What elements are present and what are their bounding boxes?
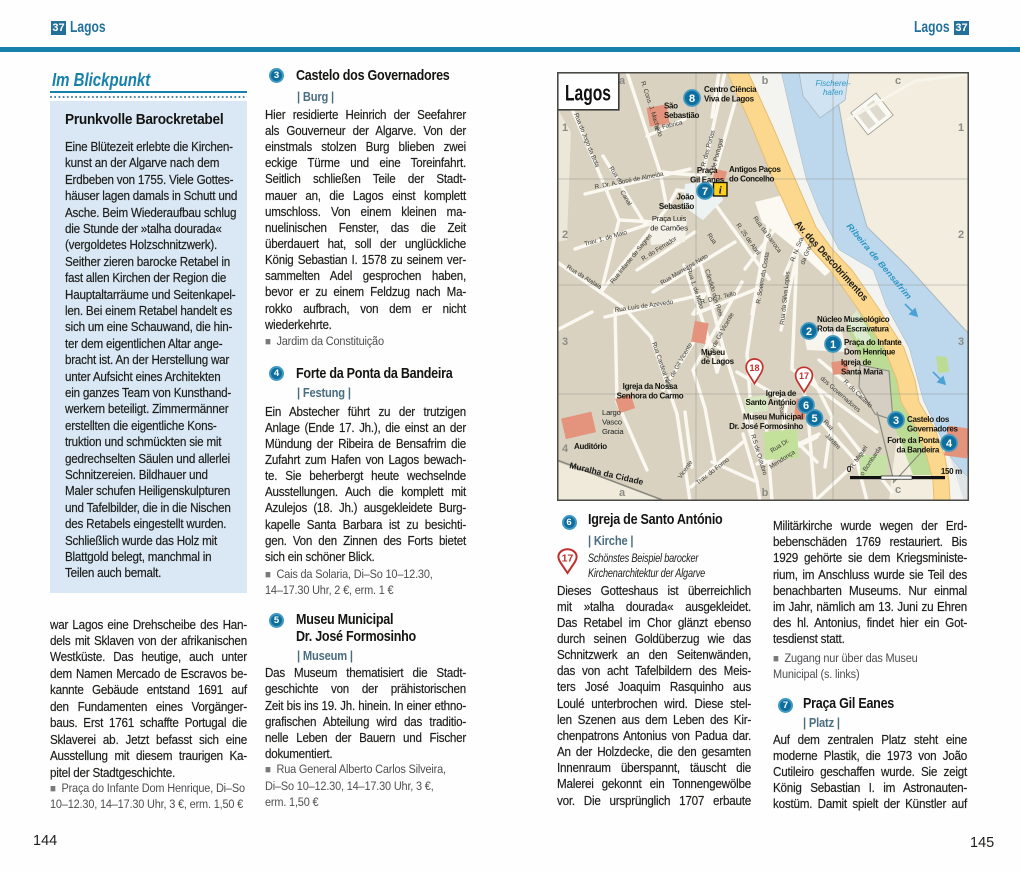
svg-text:c: c (895, 484, 901, 496)
svg-text:Rota da Escravatura: Rota da Escravatura (817, 325, 890, 334)
svg-text:b: b (762, 75, 769, 87)
svg-text:Núcleo Museológico: Núcleo Museológico (817, 315, 890, 324)
svg-text:de Lagos: de Lagos (701, 357, 735, 366)
svg-text:Gracia: Gracia (602, 427, 624, 436)
svg-text:7: 7 (702, 186, 708, 198)
svg-text:Igreja de: Igreja de (766, 389, 797, 398)
svg-text:Vasco: Vasco (602, 418, 622, 427)
svg-text:São: São (664, 102, 678, 111)
svg-text:Lagos: Lagos (565, 81, 611, 106)
svg-text:Castelo dos: Castelo dos (907, 415, 950, 424)
svg-text:0: 0 (847, 464, 852, 474)
svg-text:Auditório: Auditório (574, 442, 607, 451)
svg-text:Largo: Largo (602, 408, 621, 417)
svg-text:Igreja de: Igreja de (841, 358, 872, 367)
svg-text:Fischerei-: Fischerei- (815, 79, 850, 88)
svg-text:c: c (895, 75, 901, 87)
svg-text:Santa Maria: Santa Maria (841, 368, 883, 377)
svg-text:Santo António: Santo António (746, 398, 797, 407)
svg-text:Senhora do Carmo: Senhora do Carmo (617, 392, 684, 401)
svg-text:Viva de Lagos: Viva de Lagos (704, 95, 755, 104)
svg-text:Praça do Infante: Praça do Infante (844, 338, 902, 347)
svg-text:3: 3 (958, 336, 964, 348)
svg-text:Sebastião: Sebastião (659, 202, 695, 211)
svg-text:de Camões: de Camões (650, 224, 688, 233)
svg-text:17: 17 (562, 553, 574, 565)
svg-text:1: 1 (830, 339, 836, 351)
svg-text:1: 1 (958, 122, 964, 134)
svg-text:5: 5 (811, 413, 817, 425)
svg-text:do Concelho: do Concelho (729, 175, 775, 184)
svg-text:hafen: hafen (823, 88, 844, 97)
svg-text:Museu Municipal: Museu Municipal (743, 413, 803, 422)
svg-text:Forte da Ponta: Forte da Ponta (887, 436, 940, 445)
svg-text:150 m: 150 m (941, 467, 962, 476)
svg-text:a: a (619, 75, 626, 87)
svg-text:2: 2 (806, 326, 812, 338)
svg-text:Governadores: Governadores (907, 425, 958, 434)
svg-text:Praça Luis: Praça Luis (652, 214, 687, 223)
svg-text:4: 4 (562, 443, 569, 455)
svg-text:João: João (677, 193, 695, 202)
svg-text:17: 17 (799, 371, 809, 381)
svg-text:Centro Ciência: Centro Ciência (704, 85, 757, 94)
svg-text:Antigos Paços: Antigos Paços (729, 165, 782, 174)
svg-text:a: a (619, 487, 626, 499)
svg-text:2: 2 (562, 229, 568, 241)
svg-text:18: 18 (749, 363, 759, 373)
svg-text:b: b (762, 487, 769, 499)
svg-text:Igreja da Nossa: Igreja da Nossa (623, 382, 678, 391)
svg-text:3: 3 (893, 415, 899, 427)
svg-text:3: 3 (562, 336, 568, 348)
svg-text:4: 4 (946, 438, 953, 450)
svg-text:Dr. José Formosinho: Dr. José Formosinho (729, 422, 803, 431)
svg-text:2: 2 (958, 229, 964, 241)
svg-text:8: 8 (689, 93, 695, 105)
svg-text:1: 1 (562, 122, 568, 134)
svg-text:da Bandeira: da Bandeira (897, 446, 940, 455)
svg-text:6: 6 (803, 400, 809, 412)
svg-text:Sebastião: Sebastião (664, 111, 700, 120)
svg-text:Dom Henrique: Dom Henrique (844, 348, 896, 357)
svg-text:Museu: Museu (701, 348, 725, 357)
svg-text:Praça: Praça (697, 166, 718, 175)
